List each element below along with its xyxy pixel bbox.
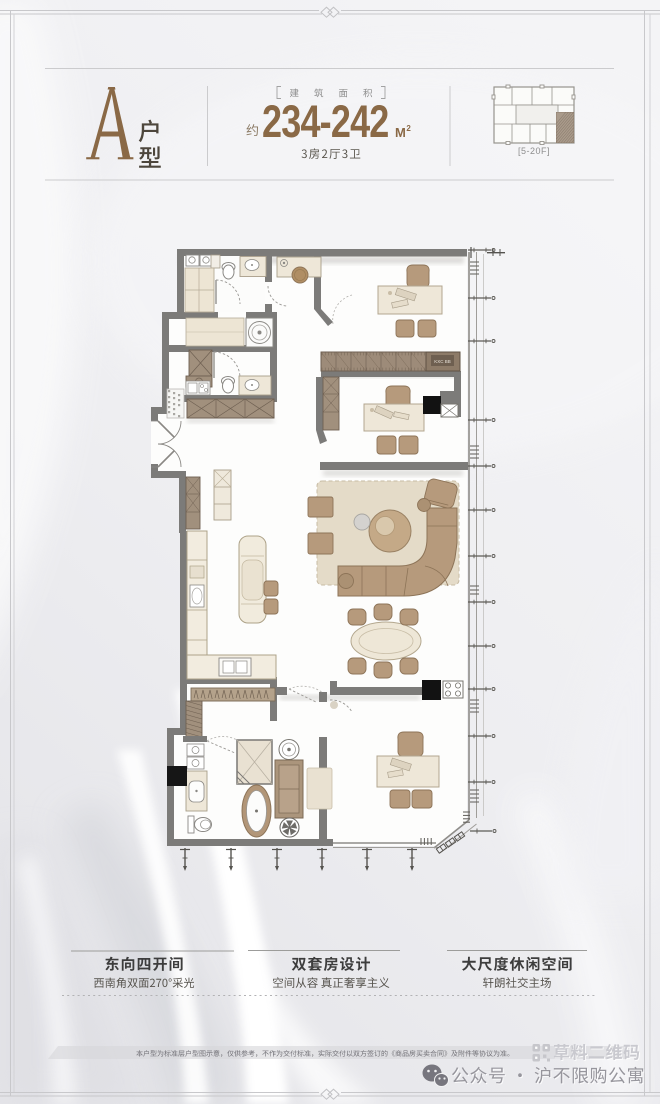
svg-text:KXC BB: KXC BB (434, 359, 451, 364)
